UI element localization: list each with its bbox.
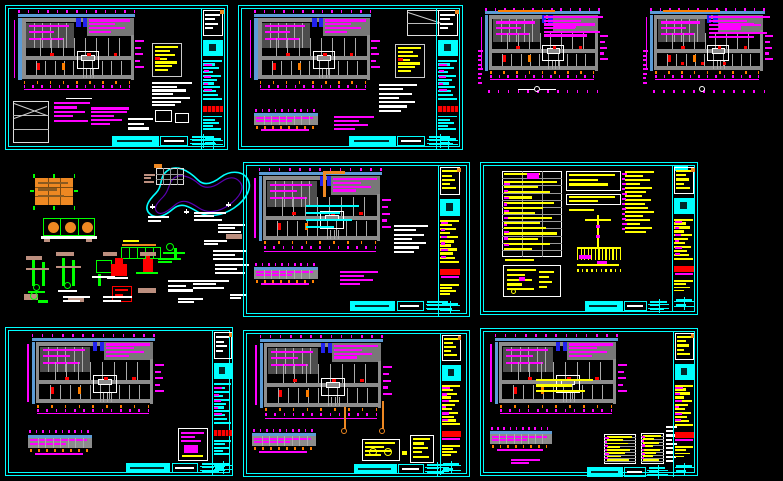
grid-line — [602, 385, 603, 399]
tick — [577, 269, 579, 272]
smear-dash — [63, 296, 90, 298]
tick — [719, 71, 721, 74]
smear-dash — [54, 120, 88, 122]
thumbnail-lines — [440, 14, 456, 32]
tick — [111, 85, 113, 88]
tick — [76, 85, 78, 88]
tick — [83, 409, 85, 412]
grid-line — [310, 38, 311, 57]
axis-ticks — [30, 190, 34, 192]
tick — [329, 246, 331, 249]
tick — [655, 75, 657, 78]
pipe-riser — [174, 248, 177, 258]
tick — [362, 408, 364, 411]
title-text — [400, 305, 420, 308]
floor-plan-detail-a[interactable] — [478, 6, 615, 98]
equipment-hatch — [89, 19, 133, 34]
tick — [370, 10, 372, 13]
smear-dash — [677, 353, 691, 355]
smear-dash — [650, 301, 667, 303]
tick — [583, 409, 585, 412]
grid-line — [221, 430, 222, 436]
tick — [555, 409, 557, 412]
smear-dash — [204, 243, 218, 245]
marker — [668, 55, 671, 62]
equipment-hatch — [544, 16, 606, 38]
grid-line — [301, 116, 302, 125]
tick — [256, 280, 258, 283]
smear-dash — [625, 219, 650, 221]
title-column-divider — [436, 8, 437, 150]
piping-circle — [511, 289, 516, 294]
smear-dash — [152, 93, 173, 95]
smear-dash — [334, 356, 357, 358]
stamp-label — [441, 276, 460, 280]
smear-dash — [340, 283, 360, 285]
grid-line — [354, 364, 355, 384]
tick — [510, 427, 512, 430]
central-detail — [317, 55, 330, 61]
drop-line — [382, 401, 384, 429]
tank-hatch — [122, 244, 158, 247]
tick — [273, 429, 275, 432]
smear-dash — [625, 179, 650, 181]
stamp-dividers — [214, 430, 232, 436]
section-bubble — [699, 86, 705, 92]
tick — [53, 174, 55, 178]
hatch-patch — [226, 234, 242, 239]
tick — [530, 445, 532, 448]
valve-stack — [32, 260, 35, 286]
drop-line — [344, 407, 346, 429]
dim-labels — [135, 40, 144, 73]
smear-dash — [427, 301, 448, 303]
grid-line — [717, 61, 718, 69]
pipe-fittings — [38, 300, 48, 303]
smear-dash — [214, 413, 221, 415]
smear-dash — [442, 451, 458, 453]
piping-detail — [152, 82, 194, 108]
grid-line — [219, 106, 220, 112]
smear-dash — [214, 443, 225, 445]
smear-dash — [643, 68, 648, 70]
grid-line — [511, 54, 512, 66]
smear-dash — [144, 177, 151, 179]
tick — [288, 109, 290, 112]
smear-dash — [591, 471, 618, 473]
grid-band — [18, 14, 135, 17]
tick — [743, 90, 745, 93]
smear-dash — [438, 60, 457, 62]
tick — [365, 81, 367, 84]
smear-dash — [709, 36, 754, 38]
wall — [258, 75, 370, 79]
tick — [256, 126, 258, 129]
grid-line — [442, 106, 443, 112]
grid-line — [63, 38, 64, 57]
smear-dash — [152, 97, 190, 99]
smear-dash — [203, 122, 219, 124]
grid-band — [18, 18, 21, 81]
tick — [732, 71, 734, 74]
marker — [293, 379, 297, 382]
smear-dash — [333, 186, 371, 188]
notes-text — [674, 280, 694, 292]
marker — [279, 390, 282, 398]
smear-dash — [442, 387, 449, 389]
smear-dash — [371, 60, 376, 62]
smear-dash — [144, 174, 155, 176]
marker — [114, 53, 117, 56]
legend-inset — [446, 203, 453, 210]
legs — [80, 69, 97, 78]
tick — [596, 334, 598, 337]
smear-dash — [622, 203, 625, 205]
title-text — [401, 140, 421, 143]
grid-line — [514, 434, 515, 444]
equipment-sketches[interactable] — [8, 160, 243, 322]
tick — [264, 241, 266, 244]
footing-ticks — [24, 81, 130, 84]
tick — [294, 109, 296, 112]
tick — [715, 75, 717, 78]
smear-dash — [427, 304, 440, 306]
tick — [262, 109, 264, 112]
wall — [263, 180, 267, 237]
legend-inset — [681, 368, 688, 375]
tick — [593, 71, 595, 74]
tick — [280, 335, 282, 338]
detail-box — [175, 113, 189, 123]
notes-flecks — [204, 64, 213, 96]
grid-line — [288, 388, 289, 402]
tick — [733, 90, 735, 93]
title-text — [627, 305, 644, 308]
tick — [275, 109, 277, 112]
notes-flecks — [675, 221, 683, 260]
tick — [278, 447, 280, 450]
smear-dash — [478, 55, 481, 57]
tick — [559, 75, 561, 78]
smear-dash — [439, 64, 448, 66]
pump-circle — [82, 222, 93, 233]
legs — [96, 393, 114, 402]
equipment-frame — [96, 260, 112, 273]
grid-line — [521, 54, 522, 66]
smear-dash — [675, 449, 686, 451]
grid-line — [228, 430, 229, 436]
grid-line — [284, 436, 285, 446]
smear-dash — [497, 449, 543, 451]
tick — [103, 334, 105, 337]
tick — [610, 269, 612, 272]
tick — [67, 85, 69, 88]
smear-dash — [642, 457, 644, 459]
pump-circle — [48, 222, 59, 233]
tick — [37, 409, 39, 412]
smear-dash — [622, 178, 625, 180]
tick — [350, 168, 352, 171]
smear-dash — [441, 276, 459, 278]
smear-dash — [643, 59, 647, 61]
tick — [325, 81, 327, 84]
smear-dash — [622, 173, 627, 175]
smear-dash — [709, 28, 741, 30]
dimension-ticks — [491, 427, 548, 430]
smear-dash — [506, 355, 533, 357]
tick — [375, 246, 377, 249]
wall — [36, 399, 154, 403]
grid-band — [495, 342, 499, 405]
smear-dash — [539, 286, 547, 288]
tick — [310, 335, 312, 338]
grid-line — [170, 168, 171, 185]
title-column-divider — [438, 165, 439, 316]
hatch-patch — [140, 252, 156, 256]
grid-line — [286, 270, 287, 279]
grid-line — [539, 54, 540, 66]
smear-dash — [622, 208, 626, 210]
tick — [707, 71, 709, 74]
tick — [341, 10, 343, 13]
tick — [82, 334, 84, 337]
grid-line — [137, 247, 138, 259]
axis-ticks — [74, 190, 78, 192]
dimension-ticks — [495, 334, 618, 337]
equipment-hatch — [333, 178, 379, 194]
tick — [266, 429, 268, 432]
dim-labels — [371, 40, 380, 73]
grid-line — [347, 61, 348, 75]
break-line — [66, 98, 92, 99]
tick — [330, 413, 332, 416]
marker — [78, 387, 81, 395]
tick — [664, 75, 666, 78]
pump-motor — [115, 258, 123, 265]
tick — [307, 263, 309, 266]
tick — [582, 269, 584, 272]
sheet-plan-bottom-center[interactable] — [243, 330, 470, 477]
pipe-line — [136, 272, 158, 274]
smear-dash — [204, 83, 209, 85]
pump-foot — [44, 239, 50, 242]
tick — [299, 81, 301, 84]
grid-line — [119, 385, 120, 399]
tick — [253, 429, 255, 432]
smear-dash — [216, 345, 228, 347]
smear-dash — [155, 61, 178, 63]
central-detail — [547, 48, 560, 54]
tick — [569, 405, 571, 408]
tick — [508, 90, 510, 93]
sheet-plan-top-left[interactable] — [5, 5, 228, 150]
grid-line — [292, 436, 293, 446]
smear-dash — [675, 439, 692, 441]
smear-dash — [676, 170, 691, 172]
tick — [153, 334, 155, 337]
smear-dash — [504, 231, 509, 233]
tick — [522, 427, 524, 430]
sheet-plan-mid-center[interactable] — [243, 162, 470, 317]
smear-dash — [666, 451, 673, 453]
tick — [53, 206, 55, 210]
tick — [260, 335, 262, 338]
floor-plan-detail-b[interactable] — [643, 6, 783, 98]
footing-ticks — [264, 241, 376, 244]
tick — [286, 81, 288, 84]
tick — [265, 408, 267, 411]
tick — [33, 174, 35, 178]
equipment-hatch — [106, 343, 152, 358]
cell-dividers — [256, 270, 316, 279]
smear-dash — [365, 442, 395, 444]
tick — [148, 409, 150, 412]
smear-dash — [627, 471, 642, 473]
smear-dash — [334, 353, 372, 355]
tick — [365, 246, 367, 249]
smear-dash — [438, 98, 457, 100]
sheet-plan-bottom-right[interactable] — [480, 328, 698, 476]
grid-line — [541, 362, 542, 381]
smear-dash — [607, 459, 629, 461]
smear-dash — [569, 183, 608, 185]
tick — [311, 413, 313, 416]
sheet-schematic[interactable] — [480, 162, 698, 315]
dimension-line — [255, 345, 256, 405]
tick — [334, 408, 336, 411]
grid-line — [329, 69, 330, 78]
smear-dash — [674, 287, 690, 289]
smear-dash — [569, 355, 592, 357]
thumbnail-lines — [444, 338, 459, 358]
smear-dash — [504, 232, 557, 234]
tick — [653, 90, 655, 93]
smear-dash — [38, 195, 64, 197]
tick — [281, 109, 283, 112]
smear-dash — [371, 40, 380, 42]
breaker-symbol — [596, 235, 600, 238]
wall — [264, 403, 382, 408]
cad-viewport[interactable] — [0, 0, 783, 481]
table-caption — [505, 259, 535, 263]
smear-dash — [625, 175, 643, 177]
sheet-plan-bottom-left[interactable] — [5, 327, 233, 476]
smear-dash — [371, 47, 377, 49]
central-detail — [98, 379, 112, 385]
smear-dash — [622, 183, 626, 185]
feeder-drop — [598, 249, 599, 260]
sheet-plan-top-center[interactable] — [238, 5, 463, 150]
revision-text — [429, 136, 451, 146]
dimension-line — [500, 413, 612, 414]
tick — [74, 206, 76, 210]
smear-dash — [442, 170, 457, 172]
smear-dash — [506, 349, 549, 351]
tick — [265, 413, 267, 416]
wall — [263, 236, 381, 241]
breaker-symbol — [579, 255, 591, 259]
tick — [106, 405, 108, 408]
grid-line — [78, 218, 79, 236]
dimension-ticks — [488, 90, 598, 93]
footing-ticks — [30, 449, 88, 452]
smear-dash — [507, 269, 536, 271]
footing-ticks — [254, 447, 312, 450]
tick — [527, 90, 529, 93]
smear-dash — [675, 419, 680, 421]
marker — [87, 53, 90, 56]
tick — [724, 75, 726, 78]
smear-dash — [625, 211, 654, 213]
smear-dash — [261, 129, 309, 131]
smear-dash — [56, 266, 81, 268]
tick — [303, 85, 305, 88]
smear-dash — [54, 115, 73, 117]
tick — [546, 409, 548, 412]
grid-line — [299, 436, 300, 446]
thumbnail-lines — [216, 336, 230, 354]
smear-dash — [676, 178, 689, 180]
revision-text — [649, 467, 666, 477]
tick — [557, 90, 559, 93]
tick — [587, 90, 589, 93]
smear-dash — [478, 50, 483, 52]
grid-line — [262, 436, 263, 446]
grid-line — [297, 221, 298, 235]
tick — [507, 445, 509, 448]
tick — [312, 85, 314, 88]
tick — [54, 449, 56, 452]
level-line — [123, 240, 139, 242]
smear-dash — [155, 364, 164, 366]
tick — [596, 269, 598, 272]
tick — [293, 413, 295, 416]
grid-line — [74, 38, 75, 57]
diagram-caption — [569, 209, 595, 213]
smear-dash — [135, 60, 140, 62]
smear-dash — [175, 467, 193, 469]
smear-dash — [496, 27, 521, 29]
tick — [295, 85, 297, 88]
dimension-line — [27, 344, 28, 402]
smear-dash — [182, 455, 203, 457]
smear-dash — [26, 268, 49, 270]
marker — [273, 63, 276, 71]
smear-dash — [504, 191, 550, 193]
sketch-label — [63, 296, 91, 304]
tick — [547, 427, 549, 430]
grid-band — [259, 176, 263, 241]
smear-dash — [205, 27, 213, 29]
grid-line — [344, 38, 345, 57]
notes-text — [675, 446, 694, 458]
marker — [723, 62, 726, 65]
tick — [681, 75, 683, 78]
smear-dash — [444, 350, 452, 352]
smear-dash — [504, 244, 509, 246]
north-marker — [457, 168, 461, 172]
grid-line — [326, 69, 327, 78]
riser-bar — [585, 219, 611, 221]
title-text — [676, 299, 693, 308]
feeder-drop — [605, 249, 606, 260]
cell-dividers — [492, 434, 549, 444]
smear-dash — [325, 31, 347, 33]
smear-dash — [625, 187, 652, 189]
tick — [49, 430, 51, 433]
tick — [293, 408, 295, 411]
smear-dash — [398, 55, 419, 57]
